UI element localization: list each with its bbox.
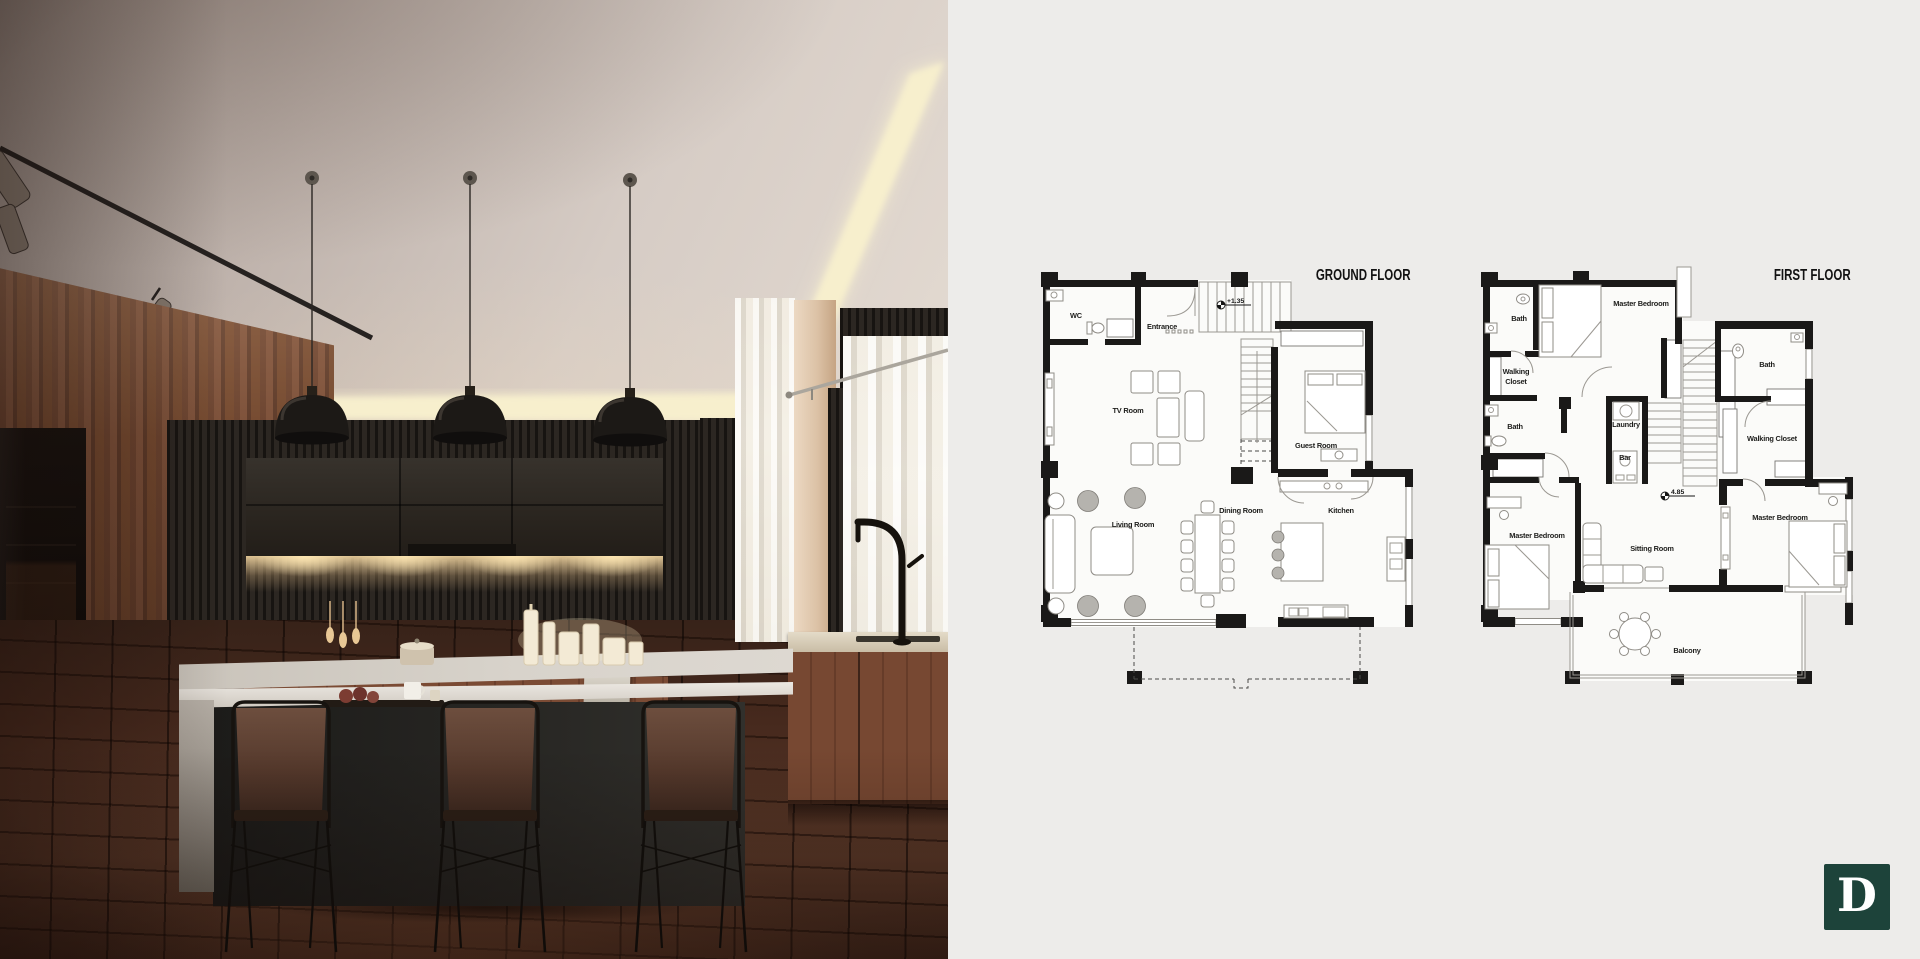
svg-text:+1.35: +1.35 [1227, 298, 1244, 305]
cabinet-floor-shadow [788, 800, 948, 826]
room-label: Master Bedroom [1613, 299, 1669, 308]
room-label: Bar [1619, 453, 1631, 462]
room-label: Walking [1503, 367, 1530, 376]
ground-floor-plan: GROUND FLOOR [1035, 255, 1425, 715]
room-label: Entrance [1147, 322, 1177, 331]
room-label: Bath [1759, 360, 1775, 369]
curtain-large [843, 336, 948, 646]
room-label: Walking Closet [1747, 434, 1798, 443]
island-waterfall-panel [179, 700, 214, 892]
room-label: Master Bedroom [1509, 531, 1565, 540]
kitchen-render-photo [0, 0, 948, 959]
right-counter [788, 632, 948, 652]
room-label: Balcony [1673, 646, 1701, 655]
room-label: Closet [1505, 377, 1527, 386]
room-label: Bath [1507, 422, 1523, 431]
room-label: Kitchen [1328, 506, 1354, 515]
slat-column-left-of-window [700, 418, 738, 642]
room-label: TV Room [1112, 406, 1144, 415]
room-label: Laundry [1612, 420, 1641, 429]
room-label: Bath [1511, 314, 1527, 323]
ground-floor-drawing: +1.35 WCEntranceTV RoomGuest RoomLiving … [1035, 255, 1425, 715]
first-floor-plan: FIRST FLOOR [1475, 255, 1865, 715]
room-label: Dining Room [1219, 506, 1263, 515]
first-floor-drawing: 4.85 BathMaster BedroomWalkingClosetBath… [1475, 255, 1865, 715]
under-cabinet-light [246, 556, 663, 592]
floor-plans-panel: GROUND FLOOR [948, 0, 1920, 959]
room-label: Living Room [1112, 520, 1155, 529]
sink [856, 636, 940, 642]
svg-text:4.85: 4.85 [1671, 489, 1684, 496]
room-label: Guest Room [1295, 441, 1338, 450]
room-label: Sitting Room [1630, 544, 1674, 553]
room-label: Master Bedroom [1752, 513, 1808, 522]
brand-logo: D [1824, 864, 1890, 930]
upper-cabinets [246, 458, 663, 558]
brand-logo-letter: D [1837, 872, 1877, 918]
right-wood-cabinets [788, 652, 948, 804]
room-label: WC [1070, 311, 1083, 320]
presentation-board: GROUND FLOOR [0, 0, 1920, 959]
curtain-small [735, 298, 797, 642]
island-base [213, 702, 745, 906]
